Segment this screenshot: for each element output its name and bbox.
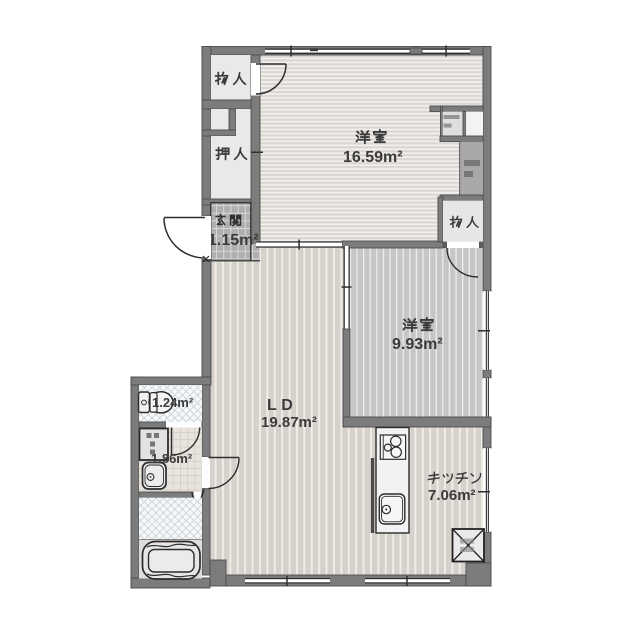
svg-text:1.24m²: 1.24m²: [152, 395, 194, 410]
svg-text:7.06m²: 7.06m²: [428, 487, 476, 504]
svg-text:1.86m²: 1.86m²: [151, 451, 193, 466]
svg-text:16.59m²: 16.59m²: [343, 149, 403, 166]
svg-text:9.93m²: 9.93m²: [392, 336, 443, 353]
svg-text:19.87m²: 19.87m²: [261, 414, 317, 431]
svg-text:LD: LD: [267, 397, 297, 414]
svg-text:1.15m²: 1.15m²: [208, 232, 259, 249]
